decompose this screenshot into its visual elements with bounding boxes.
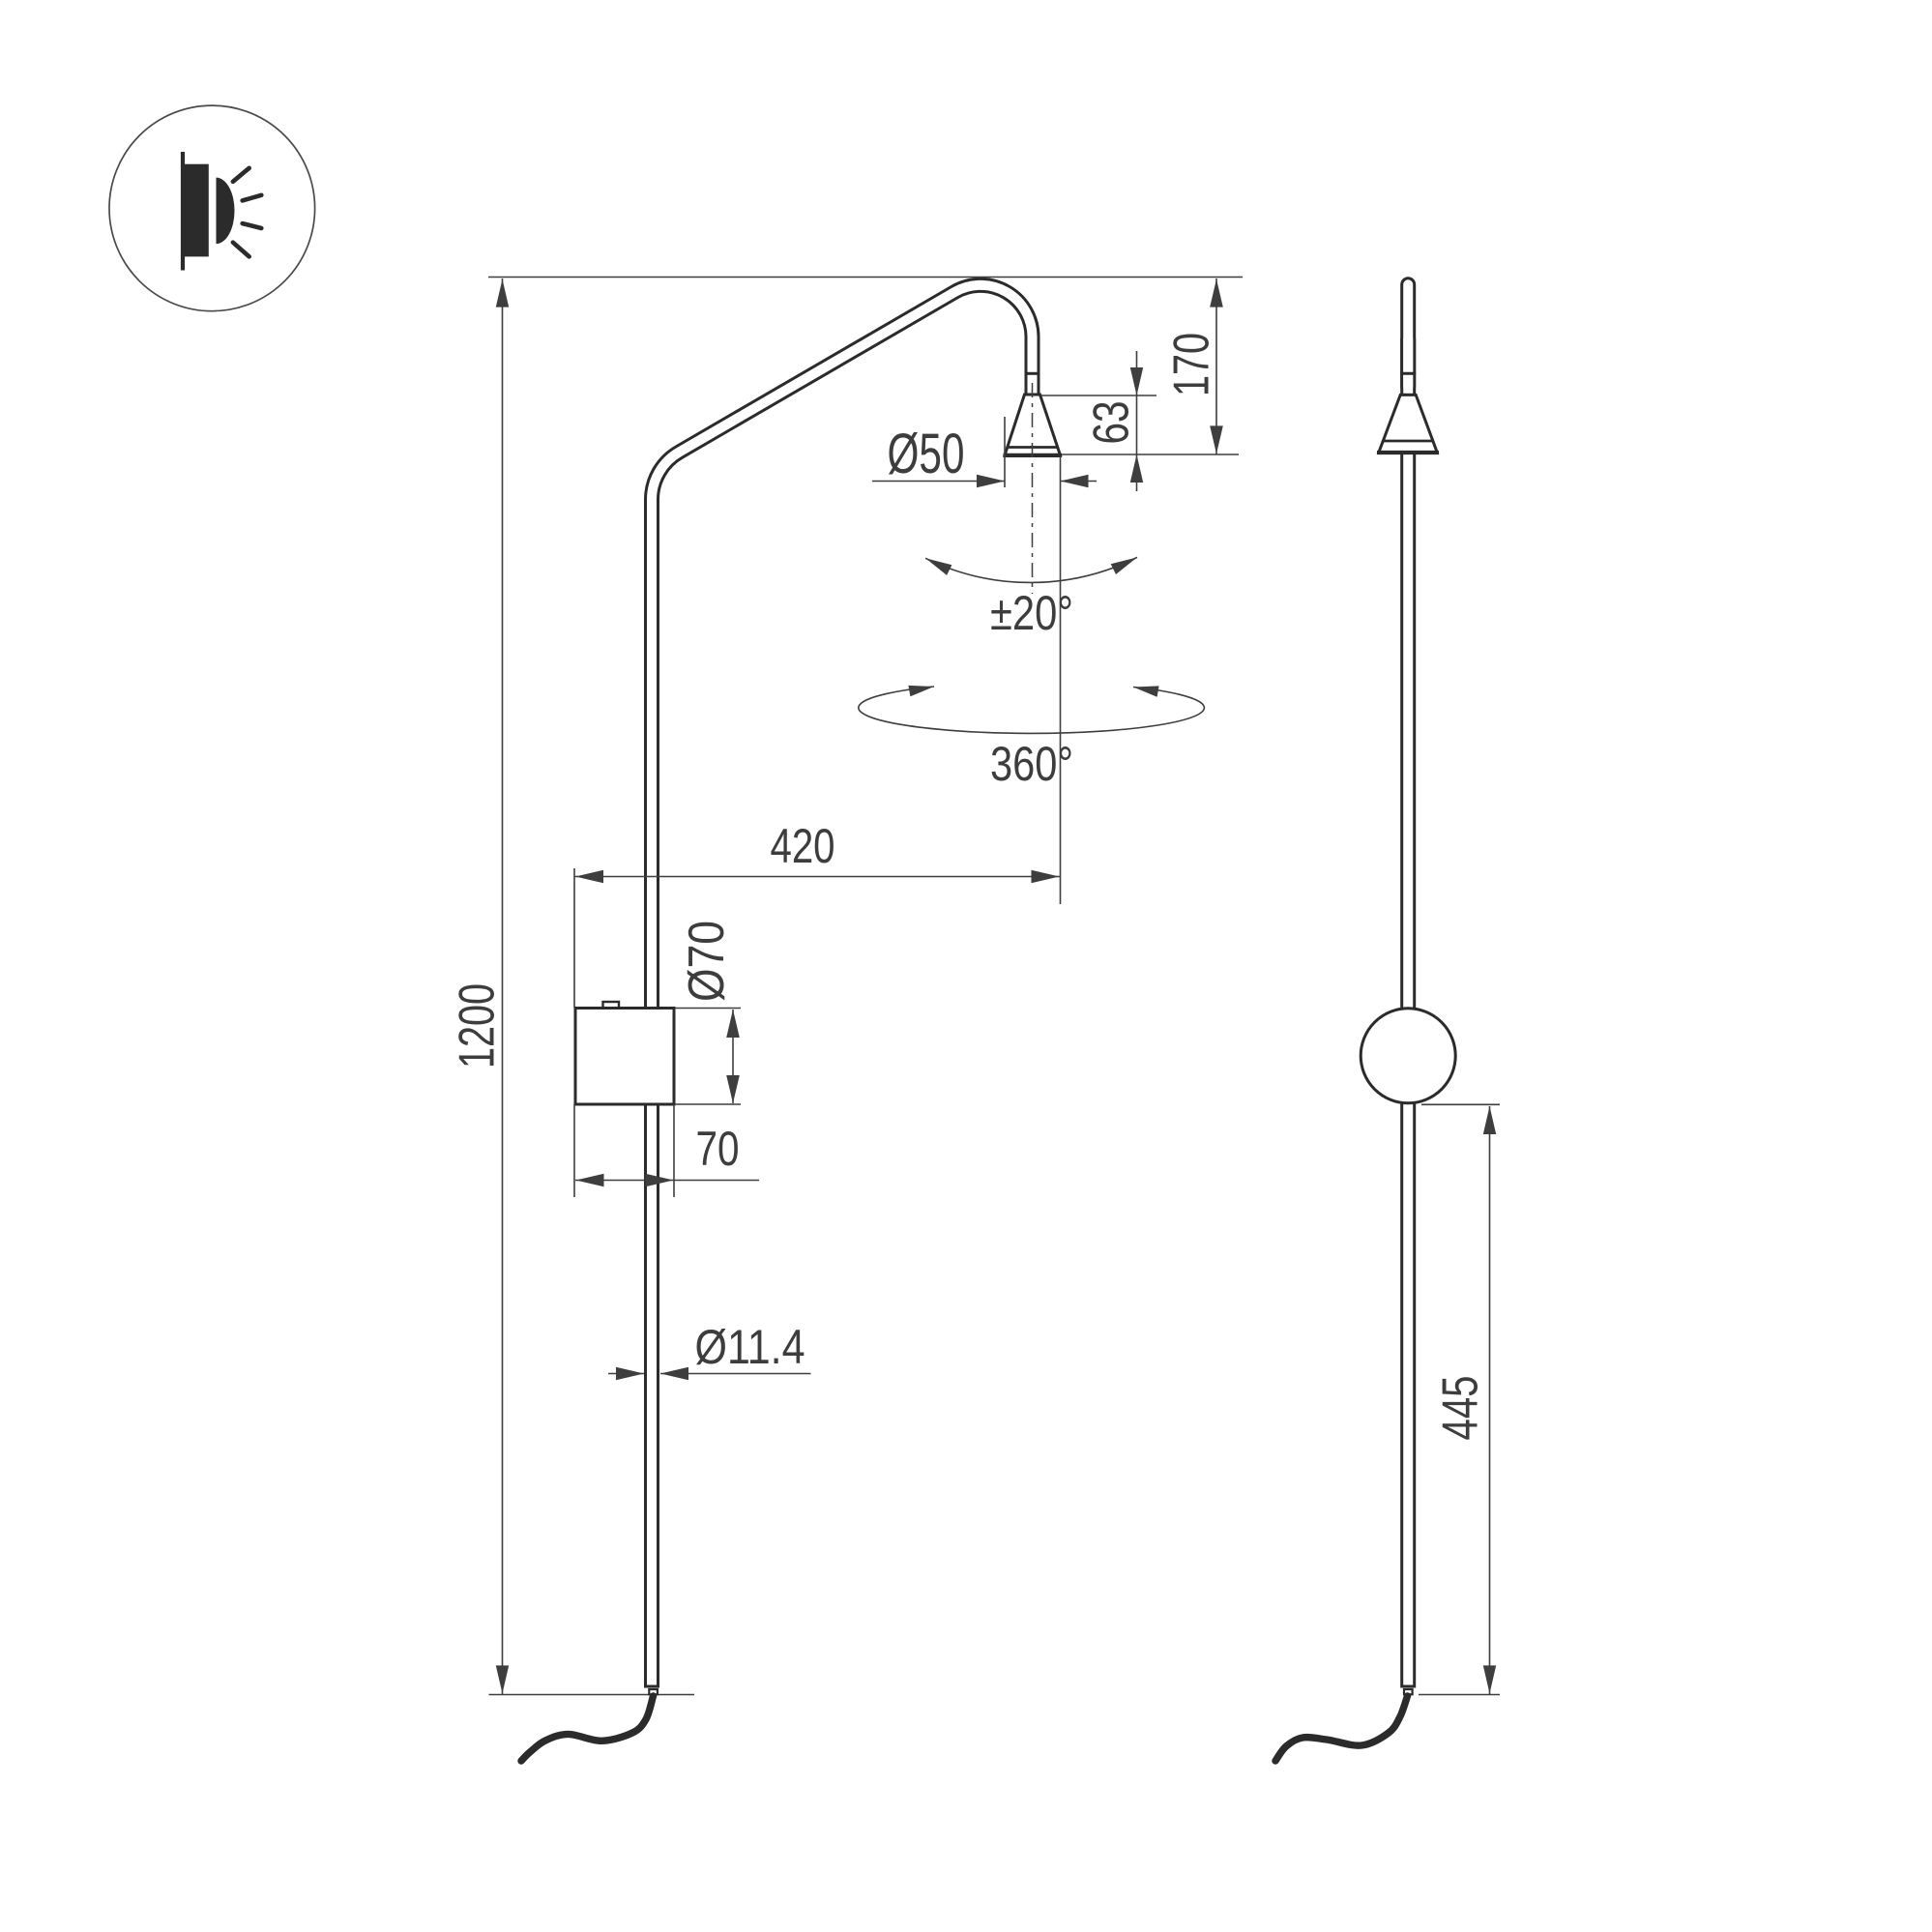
svg-text:170: 170 xyxy=(1164,333,1220,396)
svg-text:360°: 360° xyxy=(990,737,1073,791)
svg-text:Ø50: Ø50 xyxy=(888,423,965,485)
svg-text:63: 63 xyxy=(1084,401,1140,445)
svg-text:±20°: ±20° xyxy=(990,586,1073,640)
svg-text:420: 420 xyxy=(771,819,835,873)
svg-text:445: 445 xyxy=(1433,1376,1489,1441)
svg-text:Ø11.4: Ø11.4 xyxy=(695,1320,805,1374)
svg-text:Ø70: Ø70 xyxy=(679,921,735,1002)
svg-text:1200: 1200 xyxy=(450,983,506,1068)
svg-text:70: 70 xyxy=(696,1122,740,1176)
